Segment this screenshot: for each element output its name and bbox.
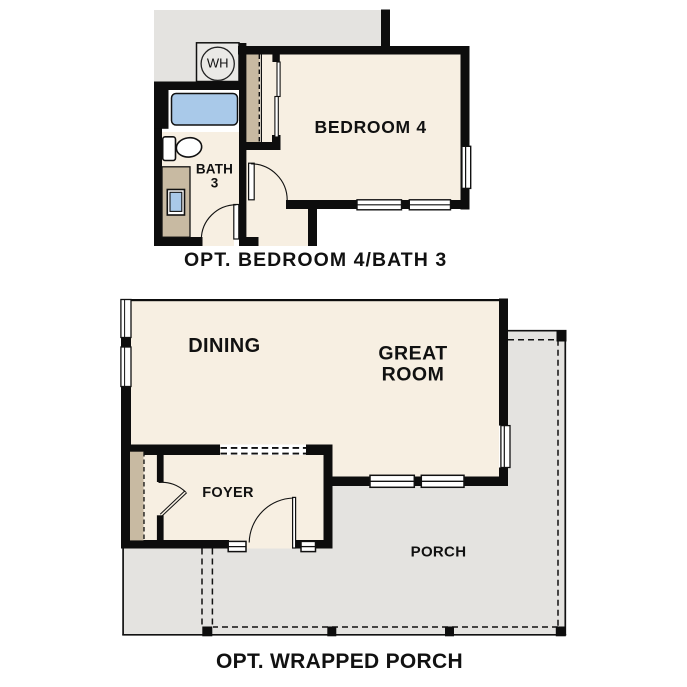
svg-text:OPT. BEDROOM 4/BATH 3: OPT. BEDROOM 4/BATH 3	[184, 249, 447, 271]
svg-text:BATH: BATH	[196, 161, 233, 176]
svg-text:GREAT: GREAT	[378, 343, 447, 365]
svg-text:3: 3	[211, 176, 219, 191]
svg-text:DINING: DINING	[188, 335, 260, 357]
svg-text:PORCH: PORCH	[411, 544, 467, 561]
svg-text:WH: WH	[207, 56, 229, 71]
svg-text:ROOM: ROOM	[382, 364, 445, 386]
svg-text:FOYER: FOYER	[202, 485, 254, 501]
svg-text:OPT. WRAPPED PORCH: OPT. WRAPPED PORCH	[216, 650, 463, 673]
svg-text:BEDROOM 4: BEDROOM 4	[315, 117, 427, 137]
